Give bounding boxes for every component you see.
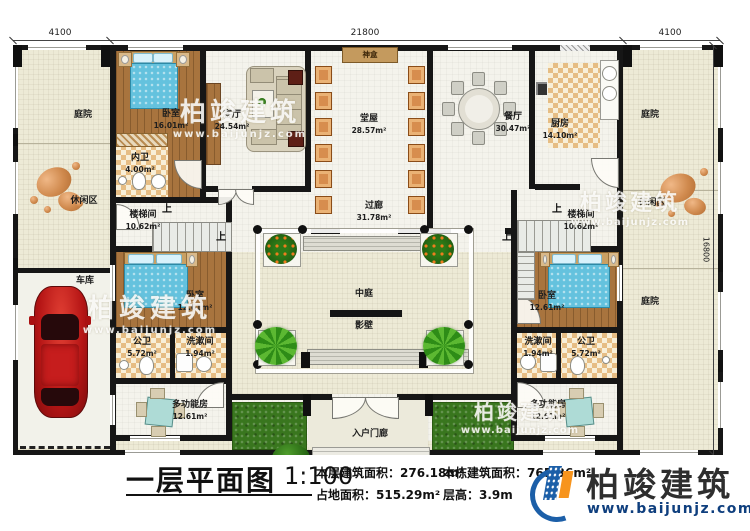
palm-plant-icon — [423, 327, 465, 365]
room-name: 中庭 — [355, 289, 373, 299]
pillow — [552, 254, 576, 264]
window — [28, 45, 86, 50]
pillar — [464, 320, 473, 329]
room-name: 影壁 — [355, 321, 373, 331]
room-name: 多功能房 — [172, 400, 208, 410]
cabinet-icon — [288, 70, 303, 85]
room-area: 1.94m² — [176, 349, 224, 359]
fence-pillar — [101, 45, 110, 67]
room-label-stairs: 楼梯间10.62m² — [556, 210, 606, 231]
dining-chair-icon — [472, 131, 485, 145]
car-rear-window — [41, 388, 79, 406]
stat-value: 3.9m — [479, 488, 513, 502]
room-label-bedroom: 卧室12.61m² — [520, 291, 574, 312]
room-area: 12.61m² — [520, 303, 574, 313]
floor-plan-page: 神盒 — [0, 0, 750, 531]
dining-chair-icon — [442, 102, 455, 116]
car-mirror — [85, 316, 91, 325]
window — [448, 45, 512, 50]
porch-post — [425, 394, 433, 416]
room-name: 堂屋 — [360, 114, 378, 124]
room-name: 公卫 — [133, 337, 151, 347]
chair-icon — [570, 426, 585, 437]
wall — [206, 186, 218, 192]
window — [718, 162, 723, 214]
louver-window — [560, 45, 590, 51]
stone-decor — [668, 210, 675, 217]
wall — [427, 45, 433, 234]
room-label-bath: 公卫5.72m² — [562, 337, 610, 358]
nightstand — [118, 52, 132, 67]
divider-line — [18, 143, 110, 144]
room-label-kitchen: 厨房14.10m² — [534, 119, 586, 140]
room-area: 14.10m² — [534, 131, 586, 141]
hall-chair-icon — [315, 196, 332, 214]
grass-patch — [432, 402, 514, 450]
room-label-bedroom: 卧室12.61m² — [168, 291, 222, 312]
fence-pillar — [13, 134, 18, 146]
stone-decor — [30, 196, 38, 204]
stair-up-label: 上 — [216, 228, 226, 243]
room-area: 31.78m² — [342, 213, 406, 223]
room-area: 12.61m² — [518, 412, 578, 422]
nightstand — [540, 252, 550, 267]
room-label-bedroom: 卧室16.01m² — [146, 109, 196, 130]
chair-icon — [569, 388, 584, 399]
chair-icon — [593, 403, 604, 418]
hall-chair-icon — [408, 118, 425, 136]
stat-footprint-area: 占地面积：515.29m² — [316, 486, 440, 503]
fruit-tree-icon — [422, 234, 454, 264]
car-roof — [41, 344, 79, 386]
grass-patch — [232, 402, 307, 450]
room-name: 楼梯间 — [129, 210, 156, 220]
walkway-band — [303, 236, 427, 251]
room-label-garage: 车库 — [60, 276, 110, 288]
window — [640, 45, 702, 50]
sink-icon — [151, 174, 166, 189]
garage-door-dashed — [20, 446, 110, 449]
stat-label: 层高： — [443, 488, 479, 502]
stair-up-label: 上 — [502, 228, 512, 243]
room-name: 楼梯间 — [567, 210, 594, 220]
stat-label: 本栋建筑面积： — [443, 466, 527, 480]
wall — [170, 333, 175, 378]
fence-pillar — [718, 360, 723, 372]
stat-value: 515.29m² — [376, 488, 440, 502]
dining-chair-icon — [451, 122, 464, 136]
room-area: 24.54m² — [206, 122, 258, 132]
room-label-multi: 多功能房12.61m² — [160, 400, 220, 421]
pillow — [156, 254, 182, 264]
hall-chair-icon — [408, 144, 425, 162]
room-name: 庭院 — [641, 297, 659, 307]
wall — [535, 184, 580, 190]
room-area: 30.47m² — [486, 124, 540, 134]
stat-floor-height: 层高：3.9m — [443, 486, 513, 503]
dimension-line — [13, 40, 720, 41]
room-name: 过廊 — [365, 201, 383, 211]
pillar — [253, 320, 262, 329]
cabinet-icon — [288, 131, 304, 147]
stone-decor — [44, 206, 51, 213]
stair-up-label: 上 — [162, 200, 172, 215]
room-label-bath: 公卫5.72m² — [118, 337, 166, 358]
fence-pillar — [13, 258, 18, 270]
dimension-value: 21800 — [335, 28, 395, 38]
toilet-icon — [570, 356, 585, 375]
pillar — [301, 352, 310, 368]
plan-title: 一层平面图 — [126, 459, 276, 499]
chair-icon — [151, 426, 166, 437]
screen-wall-bar — [330, 310, 402, 317]
dining-chair-icon — [451, 81, 464, 95]
room-name: 卧室 — [162, 109, 180, 119]
dimension-line — [713, 45, 714, 455]
chair-icon — [136, 402, 147, 417]
stat-floor-area: 本层建筑面积：276.18m² — [316, 464, 464, 481]
hall-chair-icon — [408, 66, 425, 84]
fence-pillar — [718, 260, 723, 272]
table-plant-icon — [258, 98, 266, 106]
room-label-screen-wall: 影壁 — [334, 321, 394, 333]
room-area: 10.62m² — [118, 222, 168, 232]
pillow — [128, 254, 154, 264]
fence-pillar — [13, 45, 22, 67]
room-label-stairs: 楼梯间10.62m² — [118, 210, 168, 231]
pillar — [464, 225, 473, 234]
pillar — [464, 360, 473, 369]
room-label-inner-bath: 内卫4.00m² — [118, 153, 162, 174]
room-name: 卧室 — [538, 291, 556, 301]
dimension-value: 4100 — [30, 28, 90, 38]
room-label-corridor: 过廊31.78m² — [342, 201, 406, 222]
pillow — [578, 254, 602, 264]
room-label-living: 客厅24.54m² — [206, 110, 258, 131]
hall-chair-icon — [315, 66, 332, 84]
room-name: 洗漱间 — [186, 337, 213, 347]
room-name: 洗漱间 — [524, 337, 551, 347]
room-area: 4.00m² — [118, 165, 162, 175]
room-name: 客厅 — [223, 110, 241, 120]
room-name: 休闲区 — [70, 196, 97, 206]
nightstand — [186, 252, 198, 267]
room-name: 餐厅 — [504, 112, 522, 122]
hall-chair-icon — [315, 118, 332, 136]
dimension-value: 16800 — [702, 230, 711, 270]
shrine-label: 神盒 — [363, 50, 378, 59]
pillow — [153, 53, 173, 63]
car-windshield — [41, 314, 79, 340]
room-label-hall: 堂屋28.57m² — [339, 114, 399, 135]
sofa-seat — [250, 68, 274, 83]
brand-url: www.baijunjz.com — [587, 501, 750, 517]
hall-chair-icon — [408, 92, 425, 110]
title-underline — [126, 494, 312, 496]
dining-chair-icon — [494, 81, 507, 95]
stat-label: 占地面积： — [316, 488, 376, 502]
room-area: 28.57m² — [339, 126, 399, 136]
dimension-value: 4100 — [640, 28, 700, 38]
window — [110, 395, 115, 425]
wall — [252, 186, 305, 192]
fruit-tree-icon — [265, 234, 297, 264]
nightstand — [608, 252, 619, 267]
room-name: 内卫 — [131, 153, 149, 163]
room-label-courtyard: 庭院 — [58, 110, 108, 122]
window — [13, 162, 18, 214]
stone-decor — [700, 168, 708, 176]
window — [718, 62, 723, 128]
room-area: 5.72m² — [118, 349, 166, 359]
room-name: 休闲区 — [638, 198, 665, 208]
palm-plant-icon — [255, 327, 297, 365]
room-name: 庭院 — [74, 110, 92, 120]
room-area: 10.62m² — [556, 222, 606, 232]
room-label-wash: 洗漱间1.94m² — [514, 337, 562, 358]
room-label-courtyard: 庭院 — [625, 110, 675, 122]
hall-chair-icon — [315, 170, 332, 188]
room-area: 1.94m² — [514, 349, 562, 359]
window — [718, 292, 723, 350]
brand-name: 柏竣建筑 — [586, 458, 734, 506]
kitchen-sink-icon — [602, 86, 617, 101]
room-label-leisure: 休闲区 — [624, 198, 680, 210]
room-label-atrium: 中庭 — [334, 289, 394, 301]
shower-icon — [118, 176, 127, 185]
pillar — [253, 225, 262, 234]
hall-chair-icon — [315, 92, 332, 110]
window — [13, 305, 18, 360]
room-label-courtyard: 庭院 — [625, 297, 675, 309]
window — [13, 62, 18, 128]
room-label-wash: 洗漱间1.94m² — [176, 337, 224, 358]
porch-post — [303, 394, 311, 416]
room-label-leisure: 休闲区 — [56, 196, 112, 208]
room-area: 16.01m² — [146, 121, 196, 131]
toilet-icon — [132, 172, 146, 190]
room-name: 厨房 — [551, 119, 569, 129]
room-area: 5.72m² — [562, 349, 610, 359]
room-label-porch: 入户门廊 — [340, 429, 400, 441]
stone-decor — [72, 162, 80, 170]
room-area: 12.61m² — [160, 412, 220, 422]
window — [617, 265, 622, 301]
bed-icon — [130, 63, 178, 109]
stat-label: 本层建筑面积： — [316, 466, 400, 480]
room-name: 入户门廊 — [352, 429, 388, 439]
room-name: 庭院 — [641, 110, 659, 120]
room-name: 多功能房 — [530, 400, 566, 410]
hall-chair-icon — [408, 170, 425, 188]
window — [128, 45, 183, 50]
wall — [511, 327, 623, 333]
chair-icon — [150, 388, 165, 399]
nightstand — [176, 52, 190, 67]
room-label-dining: 餐厅30.47m² — [486, 112, 540, 133]
wardrobe-icon — [116, 133, 168, 147]
room-name: 卧室 — [186, 291, 204, 301]
room-area: 12.61m² — [168, 303, 222, 313]
window — [718, 382, 723, 428]
window — [110, 265, 115, 301]
toilet-icon — [139, 356, 154, 375]
hall-chair-icon — [315, 144, 332, 162]
shrine-box: 神盒 — [342, 47, 398, 63]
stair-up-label: 上 — [552, 200, 562, 215]
wall — [226, 246, 232, 441]
wall — [397, 394, 518, 400]
pillow — [133, 53, 153, 63]
room-name: 公卫 — [577, 337, 595, 347]
wall — [229, 394, 332, 400]
shower-icon — [119, 360, 129, 370]
fence-pillar — [718, 150, 723, 162]
dining-chair-icon — [472, 72, 485, 86]
room-name: 车库 — [76, 276, 94, 286]
stove-icon — [536, 82, 547, 95]
hall-chair-icon — [408, 196, 425, 214]
car-mirror — [29, 316, 35, 325]
room-label-multi: 多功能房12.61m² — [518, 400, 578, 421]
fence-pillar — [623, 45, 632, 67]
kitchen-sink-icon — [602, 66, 617, 81]
